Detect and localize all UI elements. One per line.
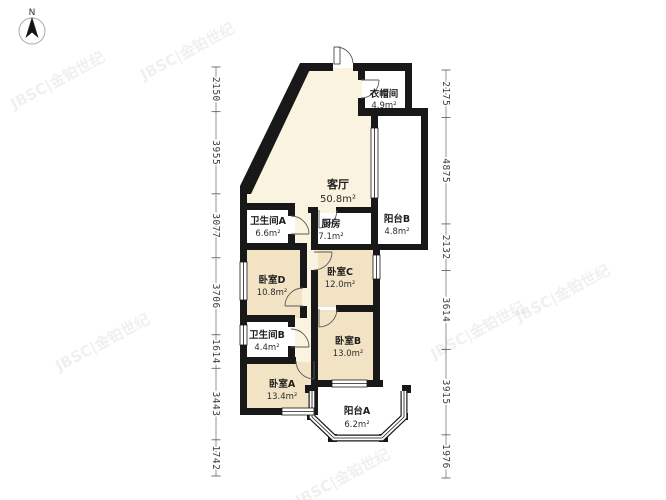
room-name: 客厅 [326,177,349,191]
dimension-label: 3955 [210,140,221,165]
dimension-label: 1976 [440,444,451,469]
room-area: 6.6m² [255,229,280,239]
watermark-text: JBSC|金铂世纪 [6,48,108,114]
compass-n-label: N [29,8,36,18]
dimension-label: 1614 [210,339,221,364]
room-area: 13.4m² [267,392,298,402]
room-area: 6.2m² [344,420,369,430]
dimension-label: 3915 [440,380,451,405]
room-area: 7.1m² [318,232,343,242]
dimension-label: 2150 [210,77,221,102]
room-name: 卫生间B [249,329,285,341]
watermark-text: JBSC|金铂世纪 [511,261,613,327]
room-name: 卧室B [335,335,361,347]
room-area: 4.9m² [371,101,396,111]
watermark-text: JBSC|金铂世纪 [291,445,393,500]
floor-plan-svg: JBSC|金铂世纪JBSC|金铂世纪JBSC|金铂世纪JBSC|金铂世纪JBSC… [0,0,666,500]
dimension-ruler-right: 217548752132361439151976 [440,70,451,478]
dimension-label: 2132 [440,235,451,260]
room-area: 12.0m² [325,280,356,290]
dimension-label: 3443 [210,392,221,417]
room-name: 卫生间A [250,215,287,227]
compass-north-icon: N [19,8,45,44]
room-name: 阳台B [384,213,410,225]
dimension-label: 2175 [440,81,451,106]
room-area: 4.4m² [254,343,279,353]
watermark-text: JBSC|金铂世纪 [136,19,238,85]
room-cloakroom: 衣帽间 4.9m² [370,88,399,111]
dimension-label: 3706 [210,284,221,309]
dimension-label: 1742 [210,445,221,470]
room-name: 卧室A [269,378,296,390]
room-name: 衣帽间 [370,88,399,100]
entry-door-leaf [334,47,340,64]
watermark-text: JBSC|金铂世纪 [51,310,153,376]
room-area: 13.0m² [333,349,364,359]
room-name: 厨房 [321,218,340,230]
dimension-label: 3614 [440,297,451,322]
room-name: 卧室C [327,266,353,278]
floor-plan-canvas: JBSC|金铂世纪JBSC|金铂世纪JBSC|金铂世纪JBSC|金铂世纪JBSC… [0,0,666,500]
dimension-label: 4875 [440,158,451,183]
room-name: 卧室D [259,274,286,286]
dimension-ruler-left: 2150395530773706161434431742 [210,67,221,476]
room-area: 4.8m² [384,227,409,237]
dimension-label: 3077 [210,213,221,238]
room-area: 50.8m² [320,194,356,205]
room-name: 阳台A [344,405,371,417]
room-area: 10.8m² [257,288,288,298]
